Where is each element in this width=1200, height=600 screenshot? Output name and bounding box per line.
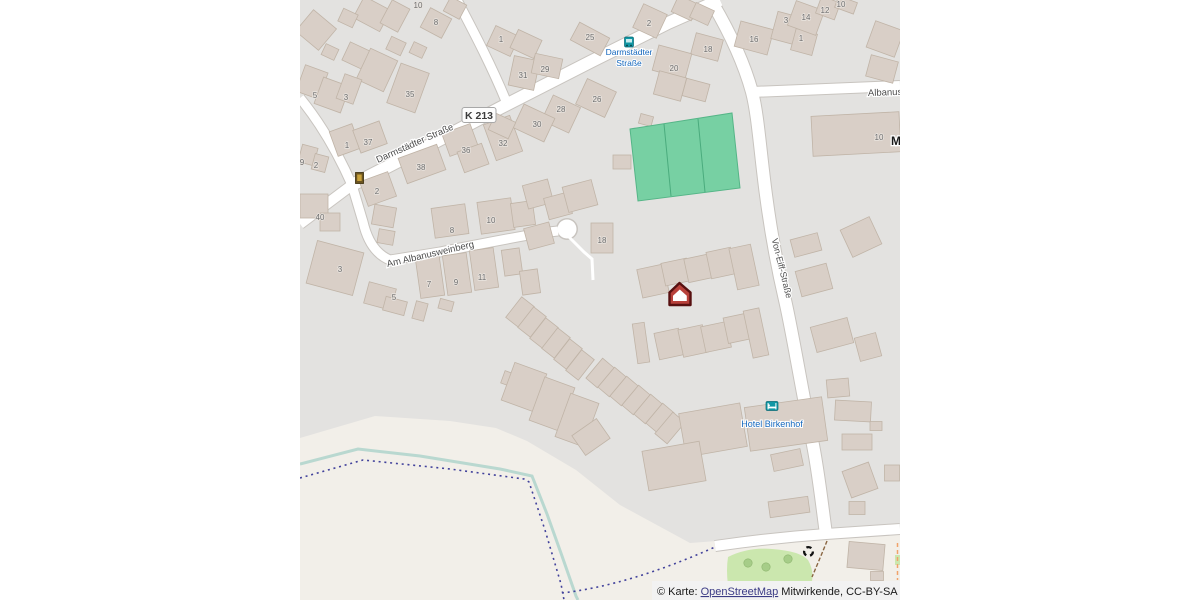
svg-text:38: 38: [417, 163, 426, 172]
svg-text:18: 18: [598, 236, 607, 245]
svg-text:7: 7: [427, 280, 432, 289]
svg-text:3: 3: [338, 265, 343, 274]
svg-text:30: 30: [533, 120, 542, 129]
svg-text:29: 29: [541, 65, 550, 74]
svg-text:16: 16: [750, 35, 759, 44]
svg-text:11: 11: [478, 273, 487, 282]
svg-text:1: 1: [799, 34, 804, 43]
svg-text:25: 25: [586, 33, 595, 42]
svg-text:K 213: K 213: [465, 110, 493, 122]
svg-text:40: 40: [316, 213, 325, 222]
svg-text:9: 9: [300, 158, 305, 167]
svg-text:Darmstädter: Darmstädter: [606, 47, 653, 57]
svg-text:32: 32: [499, 139, 508, 148]
svg-text:37: 37: [364, 138, 373, 147]
svg-text:10: 10: [837, 0, 846, 9]
svg-text:1: 1: [345, 141, 350, 150]
svg-text:2: 2: [647, 19, 652, 28]
svg-text:M: M: [891, 134, 900, 148]
svg-text:9: 9: [454, 278, 459, 287]
svg-text:20: 20: [670, 64, 679, 73]
svg-text:36: 36: [462, 146, 471, 155]
svg-text:12: 12: [821, 6, 830, 15]
svg-text:5: 5: [392, 293, 397, 302]
svg-text:10: 10: [487, 216, 496, 225]
svg-text:5: 5: [313, 91, 318, 100]
svg-text:35: 35: [406, 90, 415, 99]
svg-text:3: 3: [784, 16, 789, 25]
svg-text:31: 31: [519, 71, 528, 80]
svg-text:© Karte: OpenStreetMap Mitwirk: © Karte: OpenStreetMap Mitwirkende, CC-B…: [657, 586, 898, 598]
svg-text:3: 3: [344, 93, 349, 102]
svg-text:2: 2: [375, 187, 380, 196]
svg-text:18: 18: [704, 45, 713, 54]
svg-text:8: 8: [450, 226, 455, 235]
svg-text:10: 10: [414, 1, 423, 10]
svg-text:Hotel Birkenhof: Hotel Birkenhof: [741, 419, 803, 429]
svg-text:14: 14: [802, 13, 811, 22]
svg-text:2: 2: [314, 161, 319, 170]
svg-text:8: 8: [434, 18, 439, 27]
svg-text:Straße: Straße: [616, 58, 642, 68]
svg-text:Albanus: Albanus: [868, 87, 900, 99]
svg-text:28: 28: [557, 105, 566, 114]
svg-text:10: 10: [875, 133, 884, 142]
svg-text:26: 26: [593, 95, 602, 104]
svg-text:1: 1: [499, 35, 504, 44]
